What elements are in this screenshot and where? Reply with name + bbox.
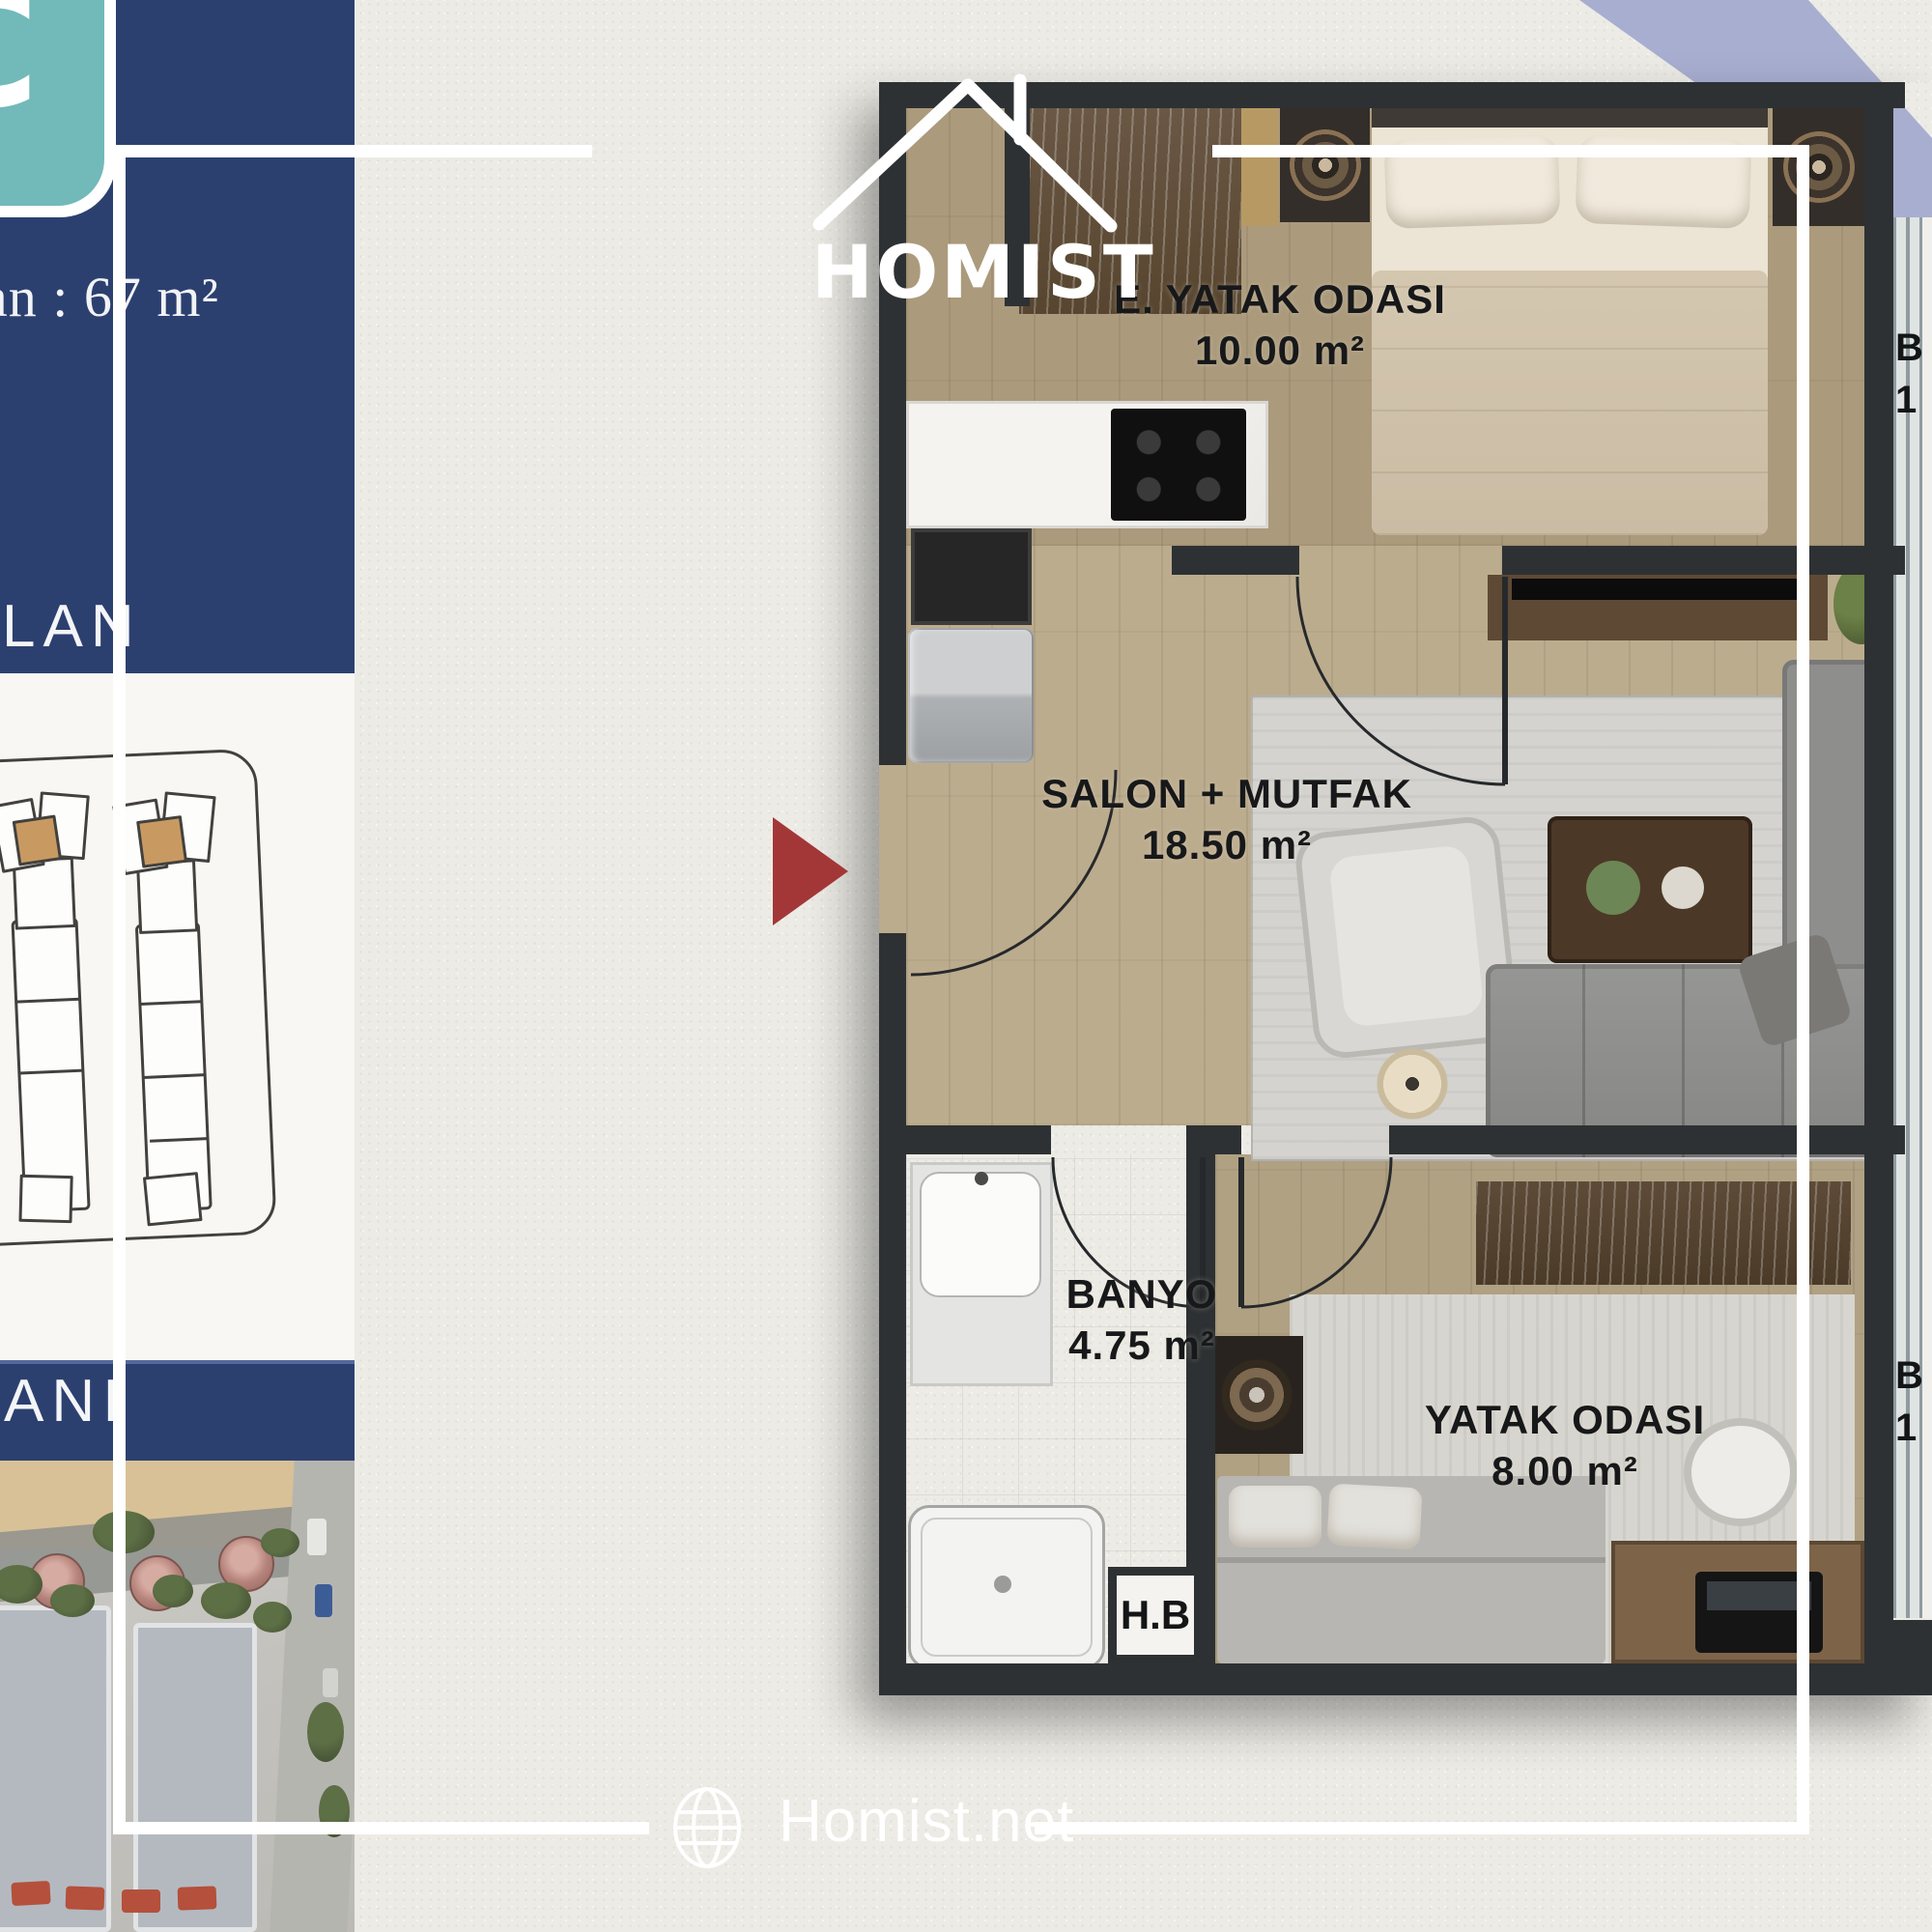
car (315, 1584, 332, 1617)
tree (201, 1582, 251, 1619)
tv (1512, 579, 1804, 600)
master-bed-headboard (1372, 108, 1768, 128)
balcony-label-line: 1 (1895, 1402, 1932, 1454)
car (307, 1519, 327, 1555)
drain (994, 1576, 1011, 1593)
poster-canvas: C an : 67 m² LAN (0, 0, 1932, 1932)
speaker-icon (1783, 131, 1855, 203)
left-sidebar: C an : 67 m² LAN (0, 0, 355, 1932)
wall (1893, 1620, 1932, 1695)
tree (50, 1584, 95, 1617)
balcony-label-line: B (1895, 322, 1932, 374)
car (323, 1668, 338, 1697)
oven-appliance (911, 528, 1032, 625)
room-label-bedroom: YATAK ODASI 8.00 m² (1362, 1394, 1768, 1496)
single-bed (1217, 1476, 1605, 1663)
room-name: BANYO (987, 1268, 1296, 1320)
building-block (133, 1623, 257, 1932)
refrigerator (908, 628, 1034, 763)
frame-bottom-left-segment (113, 1822, 649, 1834)
blanket-fold (1217, 1557, 1605, 1563)
site-plan-banner-text: ANI (4, 1372, 127, 1432)
wall (879, 933, 906, 1663)
wall (906, 1125, 1051, 1154)
room-area: 8.00 m² (1362, 1445, 1768, 1496)
frame-bottom-right-segment (1035, 1822, 1809, 1834)
tree (253, 1602, 292, 1633)
pillow (1229, 1486, 1321, 1548)
room-label-bathroom: BANYO 4.75 m² (987, 1268, 1296, 1371)
balcony-label: B 1 (1895, 322, 1932, 426)
balcony-label-line: B (1895, 1350, 1932, 1402)
tree (153, 1575, 193, 1607)
tree (307, 1702, 344, 1762)
frame-left (113, 145, 126, 1834)
shower-tray (908, 1505, 1105, 1669)
website-text: Homist.net (779, 1789, 1074, 1855)
balcony-label-line: 1 (1895, 374, 1932, 426)
frame-top-right-segment (1212, 145, 1809, 157)
balcony-label: B 1 (1895, 1350, 1932, 1454)
homist-logo: HOMIST (811, 58, 1130, 338)
nightstand-speaker (1280, 108, 1370, 222)
wall (1172, 546, 1299, 575)
tree (261, 1528, 299, 1557)
red-canopy (11, 1881, 50, 1906)
cooktop (1111, 409, 1246, 521)
armchair-seat (1328, 844, 1485, 1028)
frame-right (1797, 145, 1809, 1834)
key-plan-diagram (0, 741, 298, 1273)
wall (1389, 1125, 1905, 1154)
room-label-living-kitchen: SALON + MUTFAK 18.50 m² (1024, 768, 1430, 870)
bedroom-wardrobe (1476, 1181, 1851, 1285)
table-decor (1586, 861, 1640, 915)
wall (1186, 1125, 1241, 1154)
wall (879, 1663, 1932, 1695)
shaft-label: H.B (1121, 1592, 1190, 1638)
wall (1864, 108, 1893, 1663)
logo-text: HOMIST (811, 236, 1130, 309)
room-area: 18.50 m² (1024, 819, 1430, 870)
aerial-site-photo (0, 1461, 355, 1932)
table-decor (1662, 867, 1704, 909)
room-name: SALON + MUTFAK (1024, 768, 1430, 819)
room-area: 10.00 m² (1077, 325, 1483, 376)
gross-area-text: an : 67 m² (0, 267, 219, 328)
unit-letter: C (0, 0, 106, 131)
red-canopy (178, 1886, 217, 1910)
red-canopy (122, 1889, 160, 1913)
room-name: YATAK ODASI (1362, 1394, 1768, 1445)
wall (1502, 546, 1905, 575)
nightstand-speaker (1773, 108, 1864, 226)
speaker-icon (1290, 129, 1361, 201)
wardrobe-side-panel (1241, 108, 1278, 226)
entrance-threshold (879, 763, 906, 935)
entrance-arrow-icon (773, 817, 848, 925)
floor-lamp (1377, 1048, 1448, 1120)
sidebar-header-panel: C an : 67 m² LAN (0, 0, 355, 673)
room-area: 4.75 m² (987, 1320, 1296, 1371)
desk (1611, 1541, 1864, 1663)
faucet (975, 1172, 988, 1185)
laptop-screen (1707, 1581, 1811, 1610)
shaft-box: H.B (1108, 1567, 1203, 1663)
frame-top-left-segment (113, 145, 592, 157)
red-canopy (66, 1886, 105, 1910)
coffee-table (1548, 816, 1752, 963)
house-roof-icon (811, 58, 1130, 241)
globe-icon (670, 1785, 744, 1870)
